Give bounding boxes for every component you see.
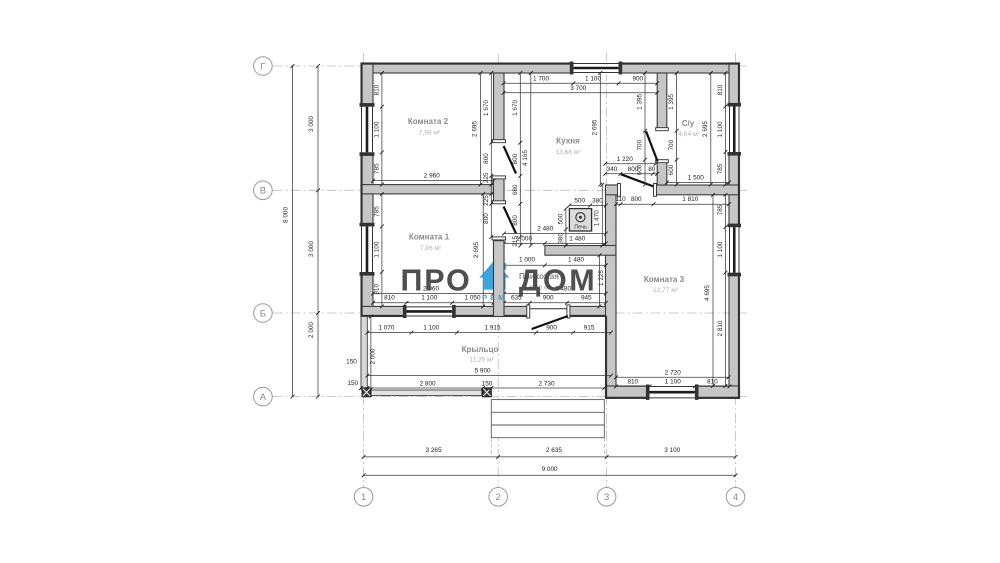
svg-text:810: 810 — [627, 379, 638, 386]
svg-text:785: 785 — [717, 163, 724, 174]
svg-text:150: 150 — [347, 380, 358, 387]
svg-text:Б: Б — [260, 308, 266, 319]
svg-text:800: 800 — [631, 196, 642, 203]
svg-text:5 900: 5 900 — [475, 368, 491, 375]
svg-text:225: 225 — [483, 195, 490, 206]
svg-text:1 100: 1 100 — [373, 241, 380, 257]
svg-text:1: 1 — [361, 492, 366, 503]
svg-text:2 635: 2 635 — [546, 447, 562, 454]
svg-text:915: 915 — [584, 325, 595, 332]
svg-text:2 800: 2 800 — [420, 380, 436, 387]
svg-text:3 265: 3 265 — [426, 447, 442, 454]
svg-text:1 070: 1 070 — [378, 325, 394, 332]
svg-text:1 225: 1 225 — [598, 270, 605, 286]
svg-text:2 695: 2 695 — [702, 121, 709, 137]
svg-text:80: 80 — [648, 166, 656, 173]
svg-text:ПРО: ПРО — [401, 264, 472, 298]
svg-text:810: 810 — [707, 379, 718, 386]
svg-text:4 695: 4 695 — [704, 285, 711, 301]
svg-text:800: 800 — [483, 153, 490, 164]
svg-text:1 670: 1 670 — [483, 100, 490, 116]
svg-text:800: 800 — [628, 166, 639, 173]
svg-text:Комната 2: Комната 2 — [408, 117, 449, 126]
svg-text:110: 110 — [616, 196, 627, 203]
svg-text:2 730: 2 730 — [539, 380, 555, 387]
svg-text:380: 380 — [557, 233, 564, 244]
svg-text:340: 340 — [607, 166, 618, 173]
svg-text:1 395: 1 395 — [636, 93, 643, 109]
svg-text:785: 785 — [373, 206, 380, 217]
svg-text:2 960: 2 960 — [424, 173, 440, 180]
svg-text:810: 810 — [373, 84, 380, 95]
svg-text:3 000: 3 000 — [308, 116, 315, 132]
svg-text:810: 810 — [717, 84, 724, 95]
svg-text:1 100: 1 100 — [373, 121, 380, 137]
svg-text:1 100: 1 100 — [585, 75, 601, 82]
svg-text:800: 800 — [483, 213, 490, 224]
svg-text:2: 2 — [496, 492, 501, 503]
svg-text:785: 785 — [373, 163, 380, 174]
svg-text:680: 680 — [512, 184, 519, 195]
svg-text:810: 810 — [373, 284, 380, 295]
svg-text:ДОМ: ДОМ — [519, 264, 597, 298]
svg-text:150: 150 — [346, 359, 357, 366]
svg-text:2 720: 2 720 — [665, 369, 681, 376]
svg-text:380: 380 — [592, 198, 603, 205]
svg-text:7,98 м²: 7,98 м² — [419, 130, 441, 137]
svg-text:12,77 м²: 12,77 м² — [653, 287, 679, 294]
svg-text:1 470: 1 470 — [594, 210, 601, 226]
svg-text:2 480: 2 480 — [537, 226, 553, 233]
svg-text:1 220: 1 220 — [617, 156, 633, 163]
svg-text:2 695: 2 695 — [472, 121, 479, 137]
svg-text:7,96 м²: 7,96 м² — [420, 245, 442, 252]
svg-text:810: 810 — [384, 295, 395, 302]
svg-text:785: 785 — [717, 204, 724, 215]
svg-text:Крыльцо: Крыльцо — [462, 345, 499, 354]
svg-text:А: А — [260, 392, 267, 403]
svg-text:1 100: 1 100 — [665, 379, 681, 386]
svg-text:3: 3 — [604, 492, 609, 503]
svg-text:500: 500 — [557, 213, 564, 224]
svg-text:1 480: 1 480 — [569, 236, 585, 243]
svg-text:800: 800 — [512, 215, 519, 226]
svg-text:8 000: 8 000 — [283, 207, 290, 223]
svg-text:4 165: 4 165 — [522, 150, 529, 166]
svg-text:150: 150 — [482, 380, 493, 387]
svg-text:3 000: 3 000 — [308, 241, 315, 257]
svg-text:11,25 м²: 11,25 м² — [469, 357, 494, 364]
svg-text:600: 600 — [668, 164, 675, 175]
svg-text:Печь: Печь — [574, 225, 587, 231]
svg-text:В: В — [260, 186, 266, 197]
svg-text:1 810: 1 810 — [682, 196, 698, 203]
svg-text:РЕМ: РЕМ — [482, 293, 507, 302]
svg-text:1 915: 1 915 — [485, 325, 501, 332]
svg-text:Кухня: Кухня — [556, 137, 580, 146]
svg-text:Комната 1: Комната 1 — [409, 233, 450, 242]
svg-text:500: 500 — [574, 198, 585, 205]
svg-text:225: 225 — [483, 172, 490, 183]
svg-text:2 695: 2 695 — [591, 119, 598, 135]
svg-text:Комната 3: Комната 3 — [644, 275, 685, 284]
svg-text:4: 4 — [733, 492, 738, 503]
svg-text:700: 700 — [668, 139, 675, 150]
svg-text:1 700: 1 700 — [533, 75, 549, 82]
svg-text:1 500: 1 500 — [688, 174, 704, 181]
svg-text:9 000: 9 000 — [542, 466, 558, 473]
svg-text:1 395: 1 395 — [668, 93, 675, 109]
svg-text:900: 900 — [632, 75, 643, 82]
svg-text:Г: Г — [260, 61, 265, 72]
svg-text:4,04 м²: 4,04 м² — [678, 131, 700, 138]
svg-text:1 100: 1 100 — [717, 121, 724, 137]
svg-text:1 100: 1 100 — [717, 241, 724, 257]
svg-text:2 000: 2 000 — [369, 348, 376, 364]
svg-text:2 695: 2 695 — [473, 242, 480, 258]
svg-text:3 100: 3 100 — [664, 447, 680, 454]
svg-text:3 700: 3 700 — [570, 85, 586, 92]
svg-text:С/у: С/у — [682, 119, 695, 128]
svg-text:700: 700 — [636, 139, 643, 150]
svg-text:2 000: 2 000 — [308, 322, 315, 338]
svg-text:2 810: 2 810 — [717, 320, 724, 336]
svg-text:1 000: 1 000 — [516, 236, 532, 243]
svg-text:1 670: 1 670 — [512, 99, 519, 115]
svg-text:800: 800 — [512, 153, 519, 164]
svg-text:900: 900 — [546, 325, 557, 332]
svg-text:13,68 м²: 13,68 м² — [555, 149, 581, 156]
svg-text:1 100: 1 100 — [423, 325, 439, 332]
